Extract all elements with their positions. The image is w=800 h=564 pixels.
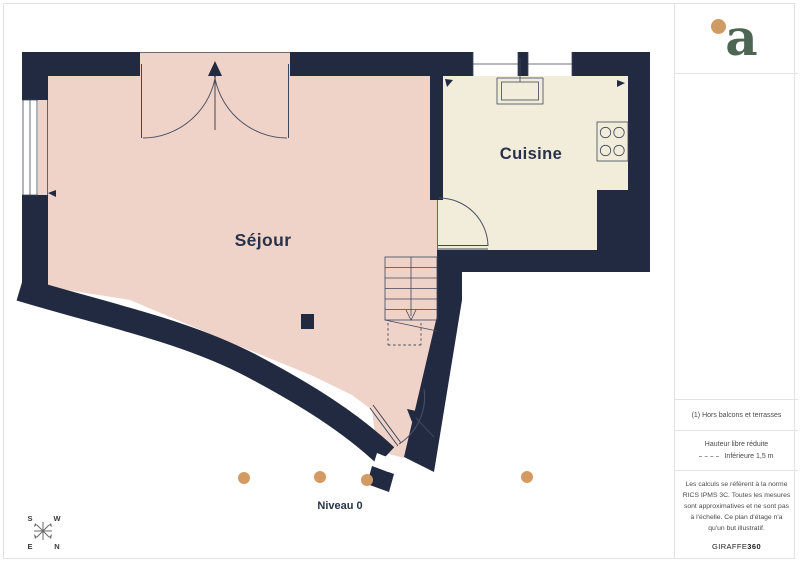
page-border — [3, 3, 795, 559]
floor-plan-page: S W E N Séjour Cuisine Niveau 0 a (1) Ho… — [0, 0, 800, 564]
